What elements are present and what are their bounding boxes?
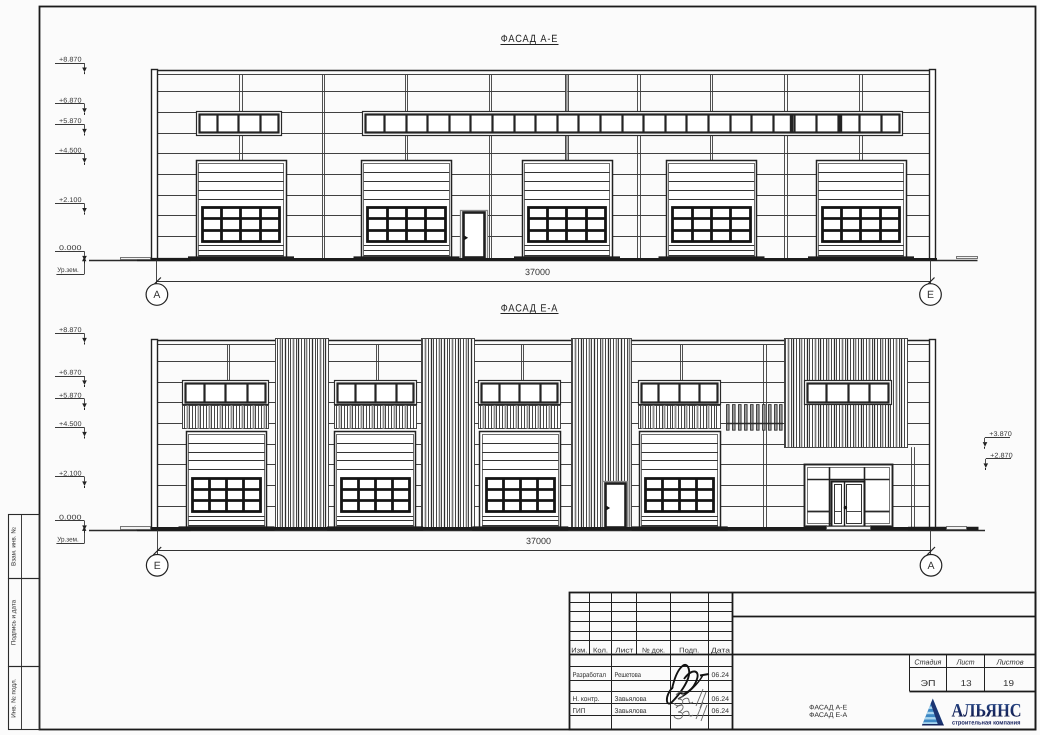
svg-text:ГИП: ГИП [573, 708, 586, 715]
svg-text:0.000: 0.000 [59, 514, 82, 521]
svg-text:Завьялова: Завьялова [615, 708, 647, 715]
svg-text:Лист: Лист [956, 657, 975, 666]
svg-text:+6.870: +6.870 [59, 97, 82, 104]
svg-text:19: 19 [1003, 678, 1014, 688]
svg-text:Листов: Листов [996, 657, 1024, 666]
svg-text:Разработал: Разработал [573, 671, 607, 679]
svg-text:Ур.зем.: Ур.зем. [57, 536, 79, 543]
svg-text:Лист: Лист [615, 647, 634, 654]
svg-text:+2.100: +2.100 [59, 197, 82, 204]
svg-text:Изм.: Изм. [571, 647, 587, 654]
svg-text:+8.870: +8.870 [59, 327, 82, 334]
svg-text:АЛЬЯНС: АЛЬЯНС [952, 700, 1022, 721]
svg-text:+5.870: +5.870 [59, 118, 82, 125]
svg-text:А: А [927, 560, 934, 572]
svg-text:Завьялова: Завьялова [615, 696, 647, 703]
svg-text:+2.870: +2.870 [990, 452, 1013, 459]
svg-text:Кол.: Кол. [593, 647, 608, 654]
svg-text:Подп.: Подп. [679, 647, 699, 654]
svg-text:Ур.зем.: Ур.зем. [57, 267, 79, 274]
svg-text:Стадия: Стадия [914, 657, 941, 666]
svg-text:+2.100: +2.100 [59, 470, 82, 477]
svg-text:Инв. № подл.: Инв. № подл. [10, 678, 17, 717]
svg-text:+8.870: +8.870 [59, 57, 82, 64]
svg-text:Подпись и дата: Подпись и дата [10, 599, 17, 645]
svg-text:№ док.: № док. [642, 647, 665, 654]
svg-text:ФАСАД А-Е: ФАСАД А-Е [809, 704, 847, 711]
svg-text:13: 13 [961, 678, 972, 688]
svg-text:ФАСАД Е-А: ФАСАД Е-А [809, 712, 847, 719]
svg-text:06.24: 06.24 [712, 708, 730, 715]
svg-text:Дата: Дата [711, 647, 730, 654]
svg-text:37000: 37000 [525, 267, 550, 277]
svg-text:+4.500: +4.500 [59, 421, 82, 428]
svg-text:+3.870: +3.870 [989, 431, 1012, 438]
svg-text:ЭП: ЭП [921, 678, 936, 688]
svg-text:+6.870: +6.870 [59, 369, 82, 376]
svg-text:Е: Е [154, 560, 161, 572]
svg-text:06.24: 06.24 [712, 672, 730, 679]
svg-text:0.000: 0.000 [59, 245, 82, 252]
svg-text:Е: Е [927, 289, 934, 301]
svg-text:+5.870: +5.870 [59, 392, 82, 399]
svg-text:А: А [153, 289, 160, 301]
svg-text:строительная компания: строительная компания [952, 719, 1021, 726]
svg-text:06.24: 06.24 [712, 696, 730, 703]
svg-text:ФАСАД А-Е: ФАСАД А-Е [501, 33, 559, 45]
svg-text:ФАСАД Е-А: ФАСАД Е-А [501, 303, 559, 315]
svg-text:Н. контр.: Н. контр. [573, 696, 600, 703]
svg-text:Решетова: Решетова [615, 672, 642, 679]
svg-text:Взам. инв. №: Взам. инв. № [10, 527, 17, 566]
svg-text:+4.500: +4.500 [59, 147, 82, 154]
svg-text:37000: 37000 [526, 536, 551, 546]
